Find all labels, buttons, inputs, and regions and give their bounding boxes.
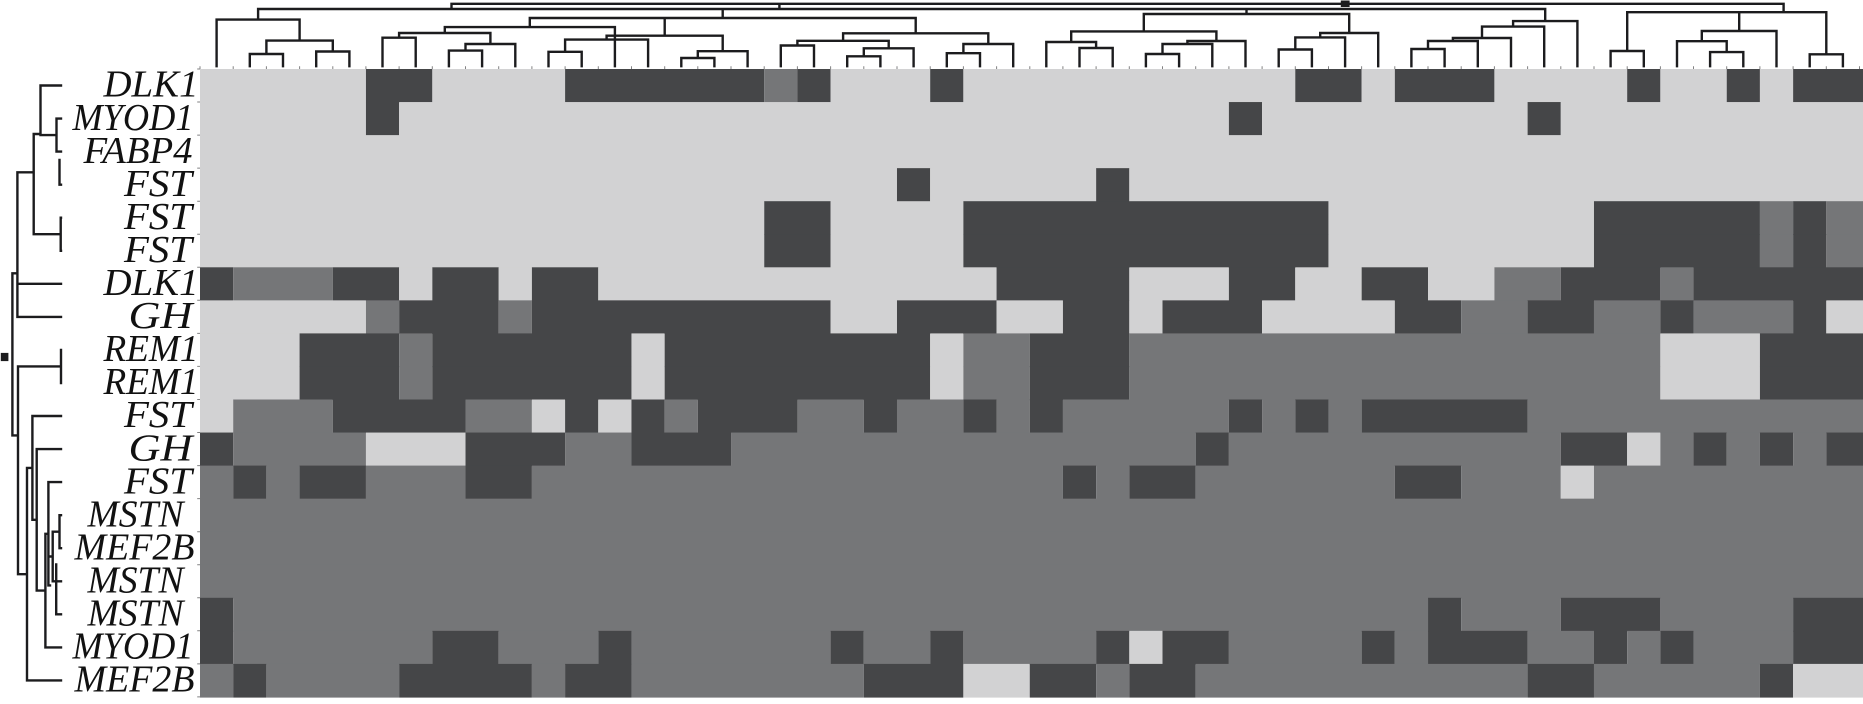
svg-text:MEF2B: MEF2B (74, 659, 195, 701)
